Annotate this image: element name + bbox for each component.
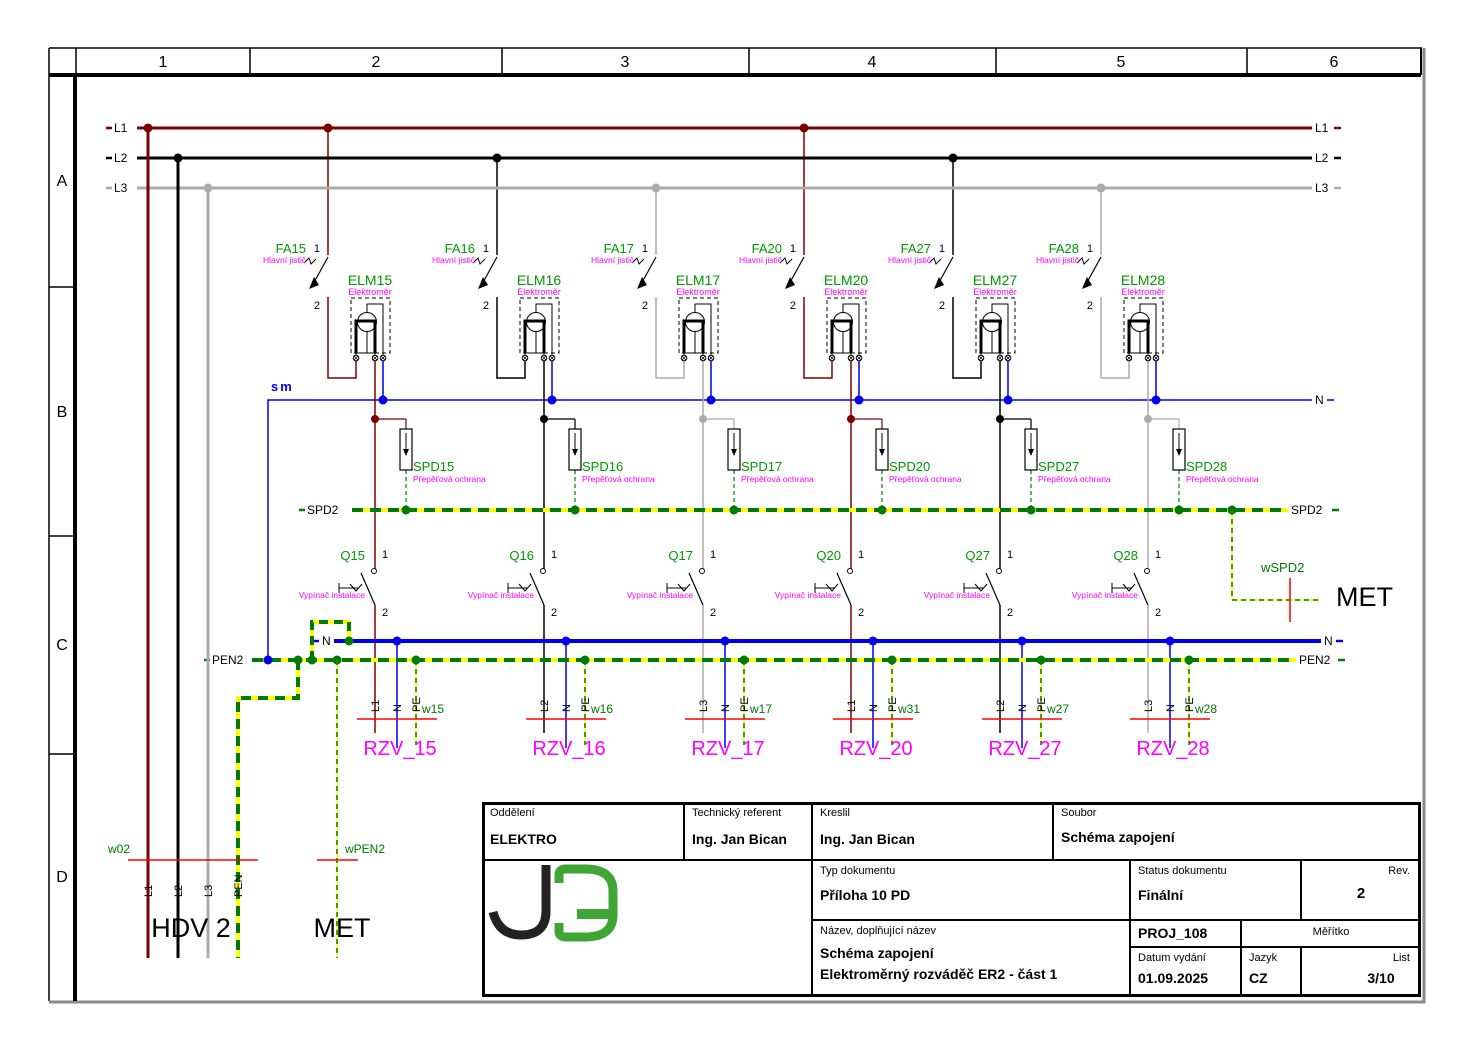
junction-dot: [996, 415, 1004, 423]
breaker-terminal-2: 2: [642, 300, 648, 312]
grid-row-label: B: [57, 404, 68, 421]
switch-desc: Vypínač instalace: [924, 590, 991, 600]
cell-status: Status dokumentu Finální: [1130, 860, 1301, 920]
cell-department: Oddělení ELEKTRO: [482, 802, 684, 860]
switch-terminal-2: 2: [1155, 607, 1161, 619]
drawn-by-label: Kreslil: [813, 803, 1052, 819]
breaker-terminal-1: 1: [314, 243, 320, 255]
feeder-met-label: MET: [314, 913, 371, 943]
meter-desc: Elektroměr: [517, 287, 561, 297]
labels: L1L1L2L2L3L3smNSPD2SPD2NNPEN2PEN2: [114, 121, 1333, 667]
core-label-L2: L2: [539, 700, 551, 712]
cable-label: w27: [1046, 702, 1069, 716]
switch-desc: Vypínač instalace: [627, 590, 694, 600]
file-label: Soubor: [1054, 803, 1420, 819]
cell-name: Název, doplňující název Schéma zapojení …: [812, 920, 1130, 997]
junction-dot: [949, 154, 958, 163]
junction-dot: [1175, 506, 1184, 515]
junction-dot: [699, 415, 707, 423]
switch-label: Q20: [816, 548, 841, 563]
core-label-PEN: PEN: [233, 874, 245, 897]
breaker-terminal-1: 1: [483, 243, 489, 255]
core-label-N: N: [561, 704, 573, 712]
breaker-desc: Hlavní jistič: [432, 255, 476, 265]
switch-terminal-1: 1: [382, 549, 388, 561]
bus-sm: [268, 400, 1312, 660]
core-label-L3: L3: [698, 700, 710, 712]
name-line1: Schéma zapojení: [813, 945, 1129, 961]
breaker-label: FA17: [604, 241, 634, 256]
core-label-N: N: [1165, 704, 1177, 712]
bus-n-label-left: N: [322, 634, 331, 648]
bus-sm-label: sm: [271, 379, 294, 394]
wires: [268, 128, 1312, 748]
bus-l1-label-right: L1: [1315, 121, 1329, 135]
bus-l1-label-left: L1: [114, 121, 128, 135]
cell-drawn-by: Kreslil Ing. Jan Bican: [812, 802, 1053, 860]
spd-symbol: [1025, 429, 1037, 470]
cell-project: PROJ_108: [1130, 920, 1241, 947]
cable-label: w31: [897, 702, 920, 716]
junction-dot: [1004, 396, 1013, 405]
junction-dot: [379, 396, 388, 405]
spd-desc: Přepěťová ochrana: [1038, 474, 1111, 484]
spd-label: SPD20: [889, 459, 930, 474]
name-label: Název, doplňující název: [813, 921, 1129, 937]
spd-desc: Přepěťová ochrana: [582, 474, 655, 484]
bus-l2-label-left: L2: [114, 151, 128, 165]
drawn-by-value: Ing. Jan Bican: [813, 831, 1052, 847]
grid-row-label: D: [56, 869, 68, 886]
meter-desc: Elektroměr: [676, 287, 720, 297]
cell-issue-date: Datum vydání 01.09.2025: [1130, 947, 1241, 997]
buses: [106, 128, 1345, 660]
language-value: CZ: [1242, 970, 1300, 986]
switch-terminal-1: 1: [858, 549, 864, 561]
switch-terminal-2: 2: [1007, 607, 1013, 619]
switch-desc: Vypínač instalace: [299, 590, 366, 600]
spd-desc: Přepěťová ochrana: [889, 474, 962, 484]
junction-dot: [1037, 656, 1046, 665]
breaker-desc: Hlavní jistič: [263, 255, 307, 265]
cable-label: w16: [590, 702, 613, 716]
grid-column-label: 4: [868, 54, 877, 71]
junction-dot: [707, 396, 716, 405]
grid-row-label: A: [57, 173, 68, 190]
department-label: Oddělení: [483, 803, 683, 819]
junction-dot: [1185, 656, 1194, 665]
switch-desc: Vypínač instalace: [468, 590, 535, 600]
feeder-hdv2: w02L1L2L3PENHDV 2: [107, 128, 298, 958]
cable-label-wspd2: wSPD2: [1260, 560, 1304, 575]
bus-n-label-right: N: [1324, 634, 1333, 648]
switch-label: Q17: [668, 548, 693, 563]
breaker-symbol: [780, 257, 804, 289]
jb-logo: [483, 861, 633, 945]
meter-label: ELM27: [973, 272, 1018, 288]
breaker-terminal-2: 2: [790, 300, 796, 312]
revision-value: 2: [1302, 885, 1420, 902]
cable-label: w28: [1194, 702, 1217, 716]
cell-logo: [482, 860, 812, 997]
spd-label: SPD28: [1186, 459, 1227, 474]
file-value: Schéma zapojení: [1054, 829, 1420, 845]
breaker-label: FA16: [445, 241, 475, 256]
breaker-desc: Hlavní jistič: [739, 255, 783, 265]
junction-dot: [888, 656, 897, 665]
breaker-desc: Hlavní jistič: [888, 255, 932, 265]
junction-dot: [740, 656, 749, 665]
junction-dot: [878, 506, 887, 515]
meter-label: ELM20: [824, 272, 869, 288]
cell-revision: Rev. 2: [1301, 860, 1421, 920]
breaker-terminal-1: 1: [939, 243, 945, 255]
grid-column-label: 1: [159, 54, 168, 71]
technical-referent-value: Ing. Jan Bican: [685, 831, 811, 847]
jb-logo-b: [559, 869, 613, 937]
name-line2: Elektroměrný rozváděč ER2 - část 1: [813, 966, 1129, 982]
project-value: PROJ_108: [1131, 925, 1240, 941]
junction-dot: [730, 506, 739, 515]
grid-column-label: 3: [621, 54, 630, 71]
junction-dot: [345, 637, 354, 646]
spd-symbol: [569, 429, 581, 470]
junction-dot: [540, 415, 548, 423]
revision-label: Rev.: [1302, 861, 1420, 877]
outlet-label: RZV_28: [1136, 738, 1209, 760]
junction-dot: [1166, 637, 1175, 646]
junction-dot: [800, 124, 809, 133]
junction-dot: [371, 415, 379, 423]
cable-label: w15: [421, 702, 444, 716]
junction-dot: [324, 124, 333, 133]
cell-scale: Měřítko: [1241, 920, 1421, 947]
switch-terminal-1: 1: [1007, 549, 1013, 561]
junction-dot: [1097, 184, 1106, 193]
junction-dots: [144, 124, 1237, 665]
breaker-terminal-2: 2: [483, 300, 489, 312]
core-label-L1: L1: [846, 700, 858, 712]
meter-desc: Elektroměr: [348, 287, 392, 297]
junction-dot: [1018, 637, 1027, 646]
switch-terminal-2: 2: [551, 607, 557, 619]
spd-desc: Přepěťová ochrana: [1186, 474, 1259, 484]
meter-label: ELM16: [517, 272, 562, 288]
document-type-label: Typ dokumentu: [813, 861, 1129, 877]
switch-terminal-2: 2: [382, 607, 388, 619]
sheet-value: 3/10: [1302, 970, 1420, 986]
outlet-label: RZV_17: [691, 738, 764, 760]
issue-date-value: 01.09.2025: [1131, 970, 1240, 986]
sheet-label: List: [1302, 948, 1420, 964]
switch-label: Q16: [509, 548, 534, 563]
spd-symbol: [400, 429, 412, 470]
grid-column-label: 6: [1330, 54, 1339, 71]
junction-dot: [562, 637, 571, 646]
cell-technical-referent: Technický referent Ing. Jan Bican: [684, 802, 812, 860]
meter-symbol: [1124, 298, 1163, 361]
meter-label: ELM28: [1121, 272, 1166, 288]
meter-symbol: [679, 298, 718, 361]
technical-referent-label: Technický referent: [685, 803, 811, 819]
spd-symbol: [1173, 429, 1185, 470]
bus-pen2-label-left: PEN2: [212, 653, 244, 667]
meter-symbol: [976, 298, 1015, 361]
cell-file: Soubor Schéma zapojení: [1053, 802, 1421, 860]
breaker-symbol: [929, 257, 953, 289]
junction-dot: [412, 656, 421, 665]
breaker-terminal-2: 2: [314, 300, 320, 312]
feeder-met-spd-label: MET: [1336, 582, 1393, 612]
meter-label: ELM15: [348, 272, 393, 288]
cell-sheet: List 3/10: [1301, 947, 1421, 997]
scale-label: Měřítko: [1242, 921, 1420, 938]
junction-dot: [1152, 396, 1161, 405]
breaker-terminal-1: 1: [642, 243, 648, 255]
breaker-terminal-2: 2: [939, 300, 945, 312]
switch-terminal-2: 2: [858, 607, 864, 619]
bus-l2-label-right: L2: [1315, 151, 1329, 165]
switch-terminal-1: 1: [1155, 549, 1161, 561]
meter-desc: Elektroměr: [824, 287, 868, 297]
junction-dot: [847, 415, 855, 423]
spd-label: SPD27: [1038, 459, 1079, 474]
switch-terminal-1: 1: [551, 549, 557, 561]
core-label-N: N: [720, 704, 732, 712]
grid-row-label: C: [56, 637, 68, 654]
breaker-symbol: [304, 257, 328, 289]
jb-logo-j: [493, 865, 546, 935]
junction-dot: [264, 656, 273, 665]
core-label-L1: L1: [370, 700, 382, 712]
junction-dot: [855, 396, 864, 405]
breaker-symbol: [632, 257, 656, 289]
spd-symbol: [728, 429, 740, 470]
junction-dot: [548, 396, 557, 405]
grid-column-label: 5: [1117, 54, 1126, 71]
meter-symbol: [827, 298, 866, 361]
document-type-value: Příloha 10 PD: [813, 887, 1129, 903]
junction-dot: [721, 637, 730, 646]
spd-label: SPD17: [741, 459, 782, 474]
breaker-terminal-2: 2: [1087, 300, 1093, 312]
feeder-met-spd: wSPD2MET: [1232, 510, 1393, 622]
breaker-terminal-1: 1: [1087, 243, 1093, 255]
outlet-label: RZV_20: [839, 738, 912, 760]
meter-symbol: [520, 298, 559, 361]
cable-label-w02: w02: [107, 842, 130, 856]
status-value: Finální: [1131, 887, 1300, 903]
junction-dot: [571, 506, 580, 515]
bus-sm-label-right: N: [1315, 393, 1324, 407]
jb-logo-b-dash: [577, 909, 611, 919]
schematic-sheet: L1L1L2L2L3L3smNSPD2SPD2NNPEN2PEN2123456A…: [0, 0, 1474, 1051]
breaker-desc: Hlavní jistič: [591, 255, 635, 265]
title-block: Oddělení ELEKTRO Technický referent Ing.…: [482, 802, 1421, 997]
issue-date-label: Datum vydání: [1131, 948, 1240, 964]
switch-terminal-1: 1: [710, 549, 716, 561]
meter-label: ELM17: [676, 272, 721, 288]
junction-dot: [402, 506, 411, 515]
breaker-desc: Hlavní jistič: [1036, 255, 1080, 265]
bus-spd2-label-left: SPD2: [307, 503, 339, 517]
switch-desc: Vypínač instalace: [1072, 590, 1139, 600]
core-label-L2: L2: [995, 700, 1007, 712]
cell-language: Jazyk CZ: [1241, 947, 1301, 997]
bus-l3-label-left: L3: [114, 181, 128, 195]
feeder-hdv2-label: HDV 2: [151, 913, 231, 943]
breaker-label: FA28: [1049, 241, 1079, 256]
cell-document-type: Typ dokumentu Příloha 10 PD: [812, 860, 1130, 920]
switch-desc: Vypínač instalace: [775, 590, 842, 600]
core-label-L3: L3: [1143, 700, 1155, 712]
bus-pen2-label-right: PEN2: [1299, 653, 1331, 667]
meter-desc: Elektroměr: [973, 287, 1017, 297]
junction-dot: [493, 154, 502, 163]
junction-dot: [393, 637, 402, 646]
grid-column-label: 2: [372, 54, 381, 71]
core-label-N: N: [868, 704, 880, 712]
switch-label: Q27: [965, 548, 990, 563]
spd-desc: Přepěťová ochrana: [741, 474, 814, 484]
cable-label: w17: [749, 702, 772, 716]
breaker-symbol: [473, 257, 497, 289]
outlet-label: RZV_27: [988, 738, 1061, 760]
breaker-symbol: [1077, 257, 1101, 289]
outlet-label: RZV_15: [363, 738, 436, 760]
junction-dot: [652, 184, 661, 193]
breaker-label: FA27: [901, 241, 931, 256]
junction-dot: [1027, 506, 1036, 515]
status-label: Status dokumentu: [1131, 861, 1300, 877]
spd-symbol: [876, 429, 888, 470]
breaker-label: FA20: [752, 241, 782, 256]
core-label-L1: L1: [143, 885, 155, 897]
spd-label: SPD15: [413, 459, 454, 474]
spd-desc: Přepěťová ochrana: [413, 474, 486, 484]
switch-terminal-2: 2: [710, 607, 716, 619]
language-label: Jazyk: [1242, 948, 1300, 964]
junction-dot: [581, 656, 590, 665]
meter-symbol: [351, 298, 390, 361]
outlet-label: RZV_16: [532, 738, 605, 760]
core-label-L2: L2: [173, 885, 185, 897]
junction-dot: [869, 637, 878, 646]
junction-dot: [308, 656, 317, 665]
core-label-N: N: [392, 704, 404, 712]
department-value: ELEKTRO: [483, 831, 683, 847]
bus-l3-label-right: L3: [1315, 181, 1329, 195]
cable-label-wpen2: wPEN2: [344, 842, 385, 856]
spd-label: SPD16: [582, 459, 623, 474]
meter-desc: Elektroměr: [1121, 287, 1165, 297]
switch-label: Q15: [340, 548, 365, 563]
breaker-label: FA15: [276, 241, 306, 256]
core-label-L3: L3: [203, 885, 215, 897]
breaker-terminal-1: 1: [790, 243, 796, 255]
bus-spd2-label-right: SPD2: [1291, 503, 1323, 517]
junction-dot: [1144, 415, 1152, 423]
switch-label: Q28: [1113, 548, 1138, 563]
core-label-N: N: [1017, 704, 1029, 712]
